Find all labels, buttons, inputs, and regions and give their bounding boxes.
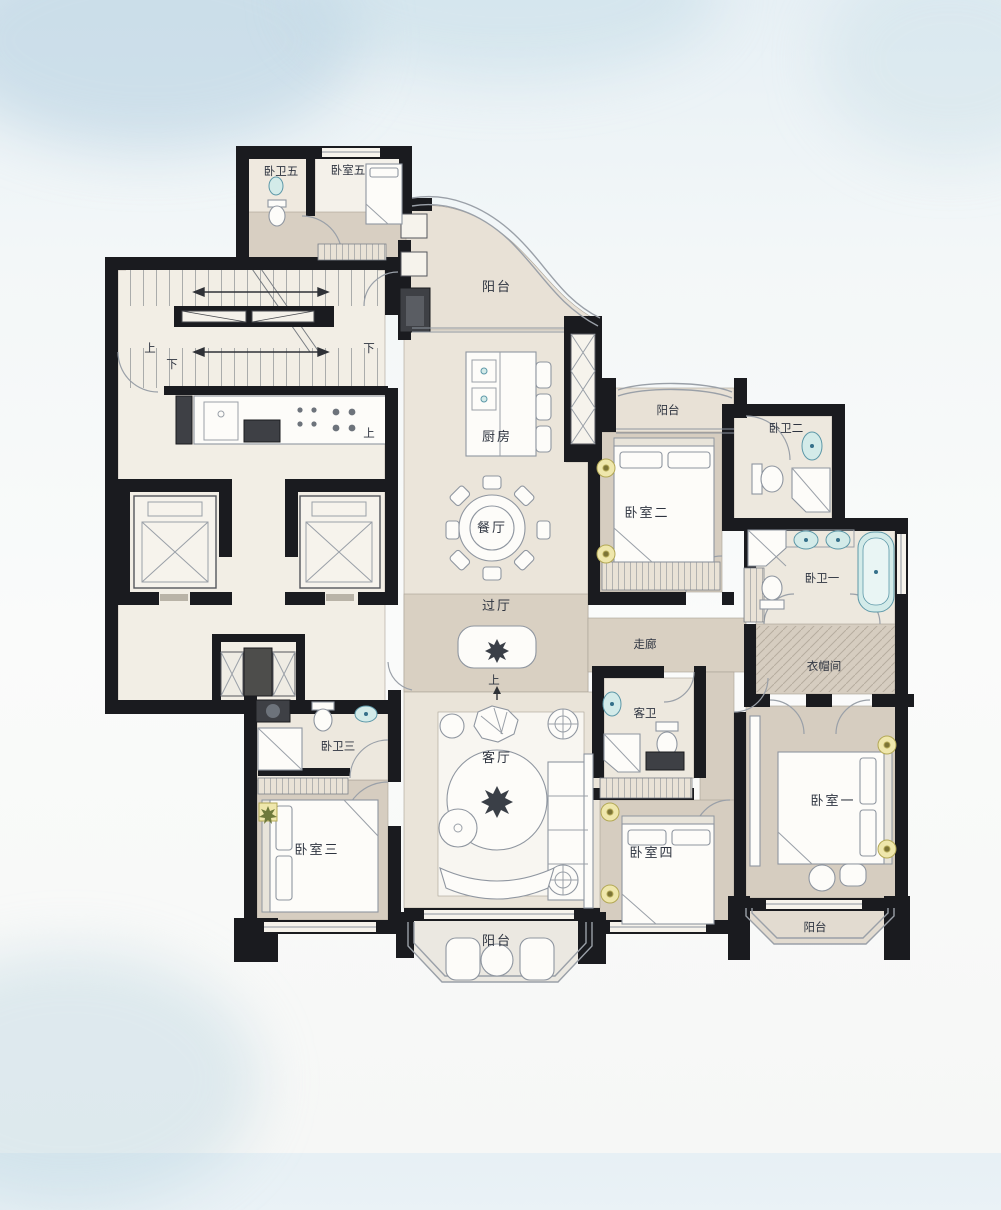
label-bath3: 卧卫三 (321, 740, 356, 753)
label-kitchen: 厨房 (482, 429, 512, 444)
label-stairs-down-right: 下 (363, 343, 375, 355)
bedroom2-bed (614, 438, 714, 562)
label-foyer: 过厅 (482, 598, 512, 613)
label-balcony2: 阳台 (657, 403, 680, 417)
label-corridor: 走廊 (634, 637, 657, 651)
label-bath5: 卧卫五 (264, 165, 299, 178)
floor-plan-page: { "plan": { "rooms": { "bath5": "卧卫五", "… (0, 0, 1001, 1153)
entry-door (221, 648, 295, 696)
label-guest-bath: 客卫 (634, 706, 657, 720)
bath5-fixtures (268, 177, 286, 226)
label-stairs-up-left: 上 (144, 342, 156, 355)
label-dining: 餐厅 (477, 520, 507, 535)
label-bedroom3: 卧室三 (294, 842, 339, 857)
label-bedroom2: 卧室二 (624, 505, 669, 520)
label-bath1: 卧卫一 (805, 572, 840, 585)
label-balcony-bottom: 阳台 (482, 933, 512, 948)
elevator-right (300, 496, 380, 601)
elevator-left (134, 496, 216, 601)
label-living: 客厅 (482, 750, 512, 765)
label-balcony-top: 阳台 (482, 279, 512, 294)
bedroom5-bed (366, 164, 402, 224)
label-balcony-right: 阳台 (804, 920, 827, 934)
label-stairs-up-right: 上 (363, 427, 375, 440)
bedroom4-bed (622, 816, 714, 924)
foyer-table (458, 626, 536, 668)
label-bedroom5: 卧室五 (331, 163, 366, 177)
floor-plan-drawing: 卧卫五 卧室五 阳台 厨房 阳台 卧卫二 卧室二 餐厅 卧卫一 过厅 走廊 衣帽… (0, 0, 1001, 1153)
label-step-up: 上 (488, 674, 500, 687)
label-bath2: 卧卫二 (769, 422, 804, 435)
label-bedroom4: 卧室四 (629, 845, 674, 860)
label-bedroom1: 卧室一 (810, 793, 855, 808)
label-cloakroom: 衣帽间 (807, 659, 842, 673)
label-stairs-down-left: 下 (166, 359, 178, 371)
